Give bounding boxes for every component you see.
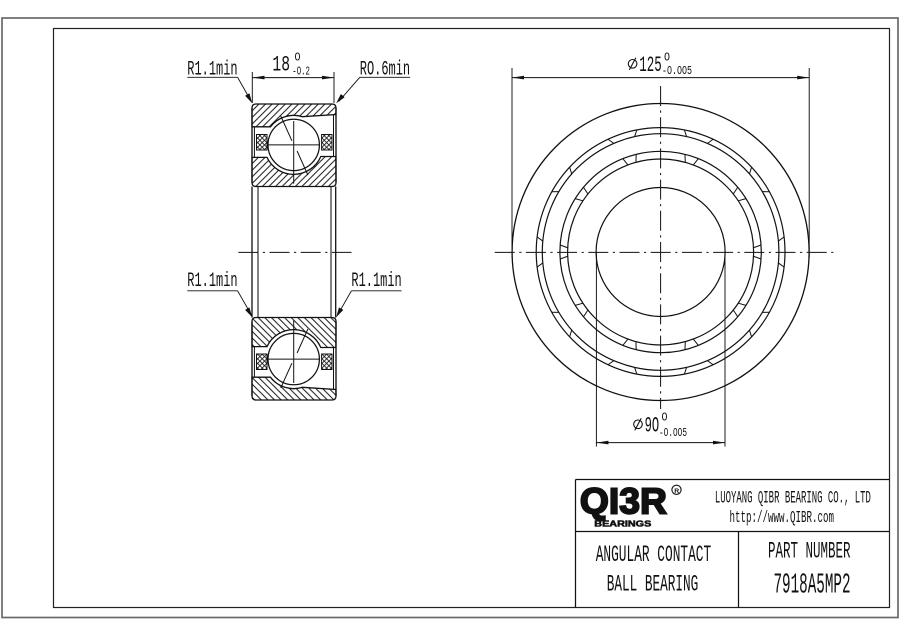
svg-text:R1.1min: R1.1min <box>351 270 401 293</box>
svg-text:BEARINGS: BEARINGS <box>594 519 651 529</box>
svg-text:-O.OO5: -O.OO5 <box>662 64 692 78</box>
svg-text:O: O <box>664 51 670 65</box>
svg-text:LUOYANG QIBR BEARING CO., LTD: LUOYANG QIBR BEARING CO., LTD <box>715 489 871 509</box>
svg-text:R1.1min: R1.1min <box>187 58 237 81</box>
svg-text:http://www.QIBR.com: http://www.QIBR.com <box>730 508 835 527</box>
svg-text:R: R <box>674 488 679 495</box>
svg-text:ANGULAR CONTACT: ANGULAR CONTACT <box>596 542 712 569</box>
svg-text:18: 18 <box>272 52 290 77</box>
svg-text:R1.1min: R1.1min <box>187 270 237 293</box>
svg-text:O: O <box>662 411 668 425</box>
svg-text:9O: 9O <box>645 414 660 439</box>
svg-text:O: O <box>295 50 301 64</box>
svg-text:BALL BEARING: BALL BEARING <box>607 572 699 599</box>
svg-text:7918A5MP2: 7918A5MP2 <box>774 568 851 601</box>
svg-text:-O.OO5: -O.OO5 <box>659 426 687 440</box>
svg-text:QI3R: QI3R <box>580 481 667 522</box>
svg-text:PART NUMBER: PART NUMBER <box>768 539 851 566</box>
svg-text:125: 125 <box>639 53 662 78</box>
svg-text:-O.2: -O.2 <box>292 65 310 79</box>
svg-text:RO.6min: RO.6min <box>360 58 410 81</box>
